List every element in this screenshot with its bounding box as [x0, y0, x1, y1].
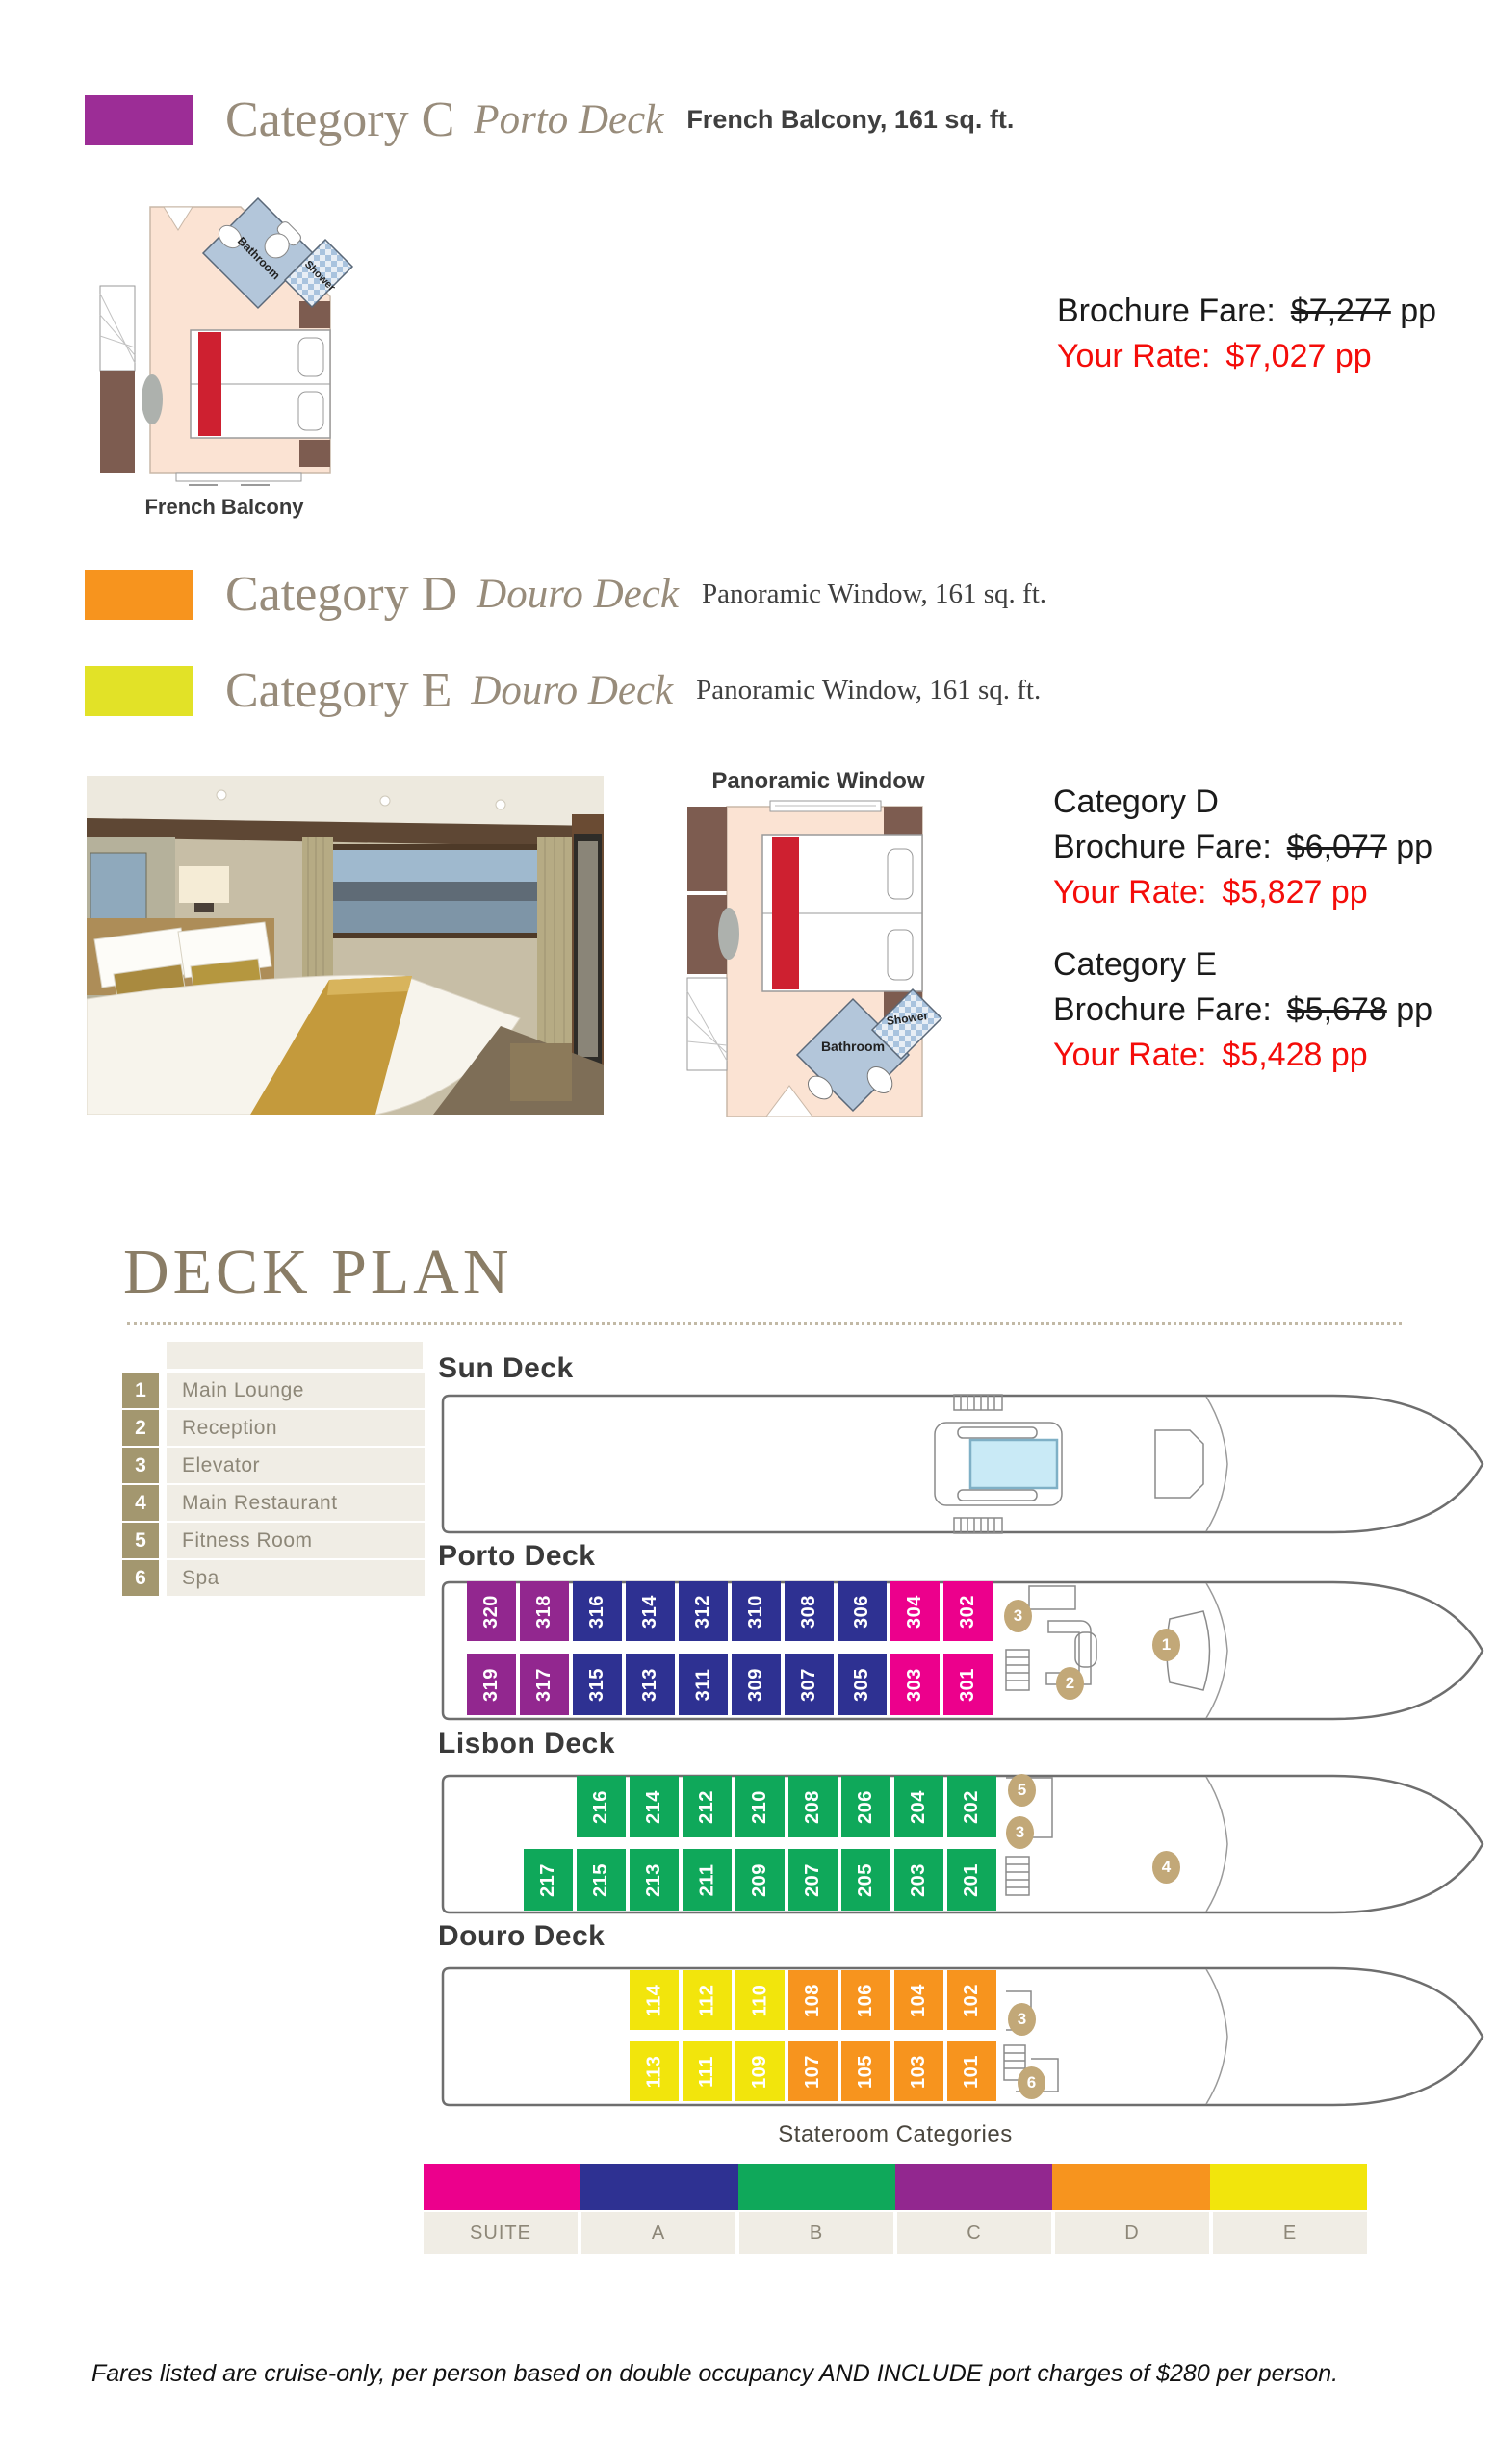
- brochure-page: Category C Porto Deck French Balcony, 16…: [0, 0, 1496, 2464]
- legend-row-3: 3Elevator: [122, 1448, 425, 1483]
- cabin-302: 302: [943, 1581, 993, 1641]
- porto-deck-label: Porto Deck: [438, 1540, 595, 1573]
- category-e-color-swatch: [85, 666, 193, 716]
- legend-label: Elevator: [167, 1448, 425, 1483]
- french-balcony-floorplan: Bathroom Shower French Balcony: [94, 197, 354, 520]
- legend-label: Main Lounge: [167, 1373, 425, 1408]
- cabin-109: 109: [735, 2041, 785, 2101]
- legend-number-badge: 6: [122, 1560, 159, 1596]
- cabin-113: 113: [630, 2041, 679, 2101]
- category-color-a: [580, 2164, 737, 2210]
- deck-marker-1: 1: [1152, 1629, 1180, 1661]
- category-c-detail: French Balcony, 161 sq. ft.: [686, 105, 1014, 135]
- ship-outline: [438, 1392, 1487, 1536]
- cabin-205: 205: [841, 1849, 890, 1911]
- cabin-213: 213: [630, 1849, 679, 1911]
- cabin-306: 306: [838, 1581, 887, 1641]
- stateroom-photo: [87, 776, 604, 1115]
- cabin-204: 204: [894, 1776, 943, 1837]
- cabin-215: 215: [577, 1849, 626, 1911]
- category-d-title: Category D: [225, 566, 457, 623]
- cabin-209: 209: [735, 1849, 785, 1911]
- deck-marker-3: 3: [1004, 1600, 1032, 1632]
- category-e-brochure-fare: Brochure Fare:$5,678 pp: [1053, 988, 1432, 1033]
- lisbon-deck-hull: 2162142122102082062042022172152132112092…: [438, 1772, 1487, 1916]
- category-color-c: [895, 2164, 1052, 2210]
- cabin-217: 217: [524, 1849, 573, 1911]
- french-balcony-floorplan-drawing: Bathroom Shower: [94, 197, 354, 486]
- panoramic-window-caption: Panoramic Window: [674, 768, 963, 795]
- cabin-314: 314: [626, 1581, 675, 1641]
- legend-row-6: 6Spa: [122, 1560, 425, 1596]
- stateroom-photo-image: [87, 776, 604, 1115]
- cabin-316: 316: [573, 1581, 622, 1641]
- category-d-deck-name: Douro Deck: [477, 571, 679, 618]
- legend-label: Fitness Room: [167, 1523, 425, 1558]
- legend-number-badge: 4: [122, 1485, 159, 1521]
- cabin-313: 313: [626, 1654, 675, 1715]
- deck-plan-divider: [127, 1322, 1402, 1325]
- legend-label: Spa: [167, 1560, 425, 1596]
- legend-number-badge: 3: [122, 1448, 159, 1483]
- cabin-307: 307: [785, 1654, 834, 1715]
- category-c-color-swatch: [85, 95, 193, 145]
- cabin-310: 310: [732, 1581, 781, 1641]
- cabin-318: 318: [520, 1581, 569, 1641]
- legend-row-5: 5Fitness Room: [122, 1523, 425, 1558]
- legend-row-4: 4Main Restaurant: [122, 1485, 425, 1521]
- category-d-header: Category D Douro Deck Panoramic Window, …: [85, 566, 1046, 623]
- category-e-title: Category E: [225, 662, 451, 719]
- cabin-208: 208: [788, 1776, 838, 1837]
- cabin-319: 319: [467, 1654, 516, 1715]
- legend-number-badge: 5: [122, 1523, 159, 1558]
- category-label-d: D: [1055, 2212, 1209, 2254]
- category-color-e: [1210, 2164, 1367, 2210]
- category-label-b: B: [739, 2212, 893, 2254]
- cabin-107: 107: [788, 2041, 838, 2101]
- deck-marker-3: 3: [1008, 2003, 1036, 2036]
- category-color-suite: [424, 2164, 580, 2210]
- legend-row-1: 1Main Lounge: [122, 1373, 425, 1408]
- category-c-title: Category C: [225, 91, 454, 148]
- cabin-212: 212: [683, 1776, 732, 1837]
- deck-marker-2: 2: [1056, 1667, 1084, 1700]
- category-e-deck-name: Douro Deck: [471, 667, 673, 714]
- cabin-309: 309: [732, 1654, 781, 1715]
- cabin-312: 312: [679, 1581, 728, 1641]
- category-d-your-rate: Your Rate:$5,827 pp: [1053, 870, 1432, 915]
- cabin-104: 104: [894, 1970, 943, 2030]
- sun-deck-hull: [438, 1392, 1487, 1536]
- cabin-206: 206: [841, 1776, 890, 1837]
- stateroom-legend-title: Stateroom Categories: [424, 2121, 1367, 2148]
- cabin-305: 305: [838, 1654, 887, 1715]
- cabin-101: 101: [947, 2041, 996, 2101]
- douro-deck-label: Douro Deck: [438, 1920, 605, 1953]
- cabin-203: 203: [894, 1849, 943, 1911]
- category-e-your-rate: Your Rate:$5,428 pp: [1053, 1033, 1432, 1078]
- category-c-your-rate: Your Rate:$7,027 pp: [1057, 334, 1436, 379]
- category-label-a: A: [581, 2212, 735, 2254]
- porto-deck-hull: 3203183163143123103083063043023193173153…: [438, 1578, 1487, 1723]
- cabin-216: 216: [577, 1776, 626, 1837]
- category-d-brochure-fare: Brochure Fare:$6,077 pp: [1053, 825, 1432, 870]
- cabin-103: 103: [894, 2041, 943, 2101]
- cabin-102: 102: [947, 1970, 996, 2030]
- legend-label: Main Restaurant: [167, 1485, 425, 1521]
- category-d-pricing-title: Category D: [1053, 780, 1432, 825]
- category-c-brochure-fare: Brochure Fare:$7,277 pp: [1057, 289, 1436, 334]
- cabin-110: 110: [735, 1970, 785, 2030]
- category-d-detail: Panoramic Window, 161 sq. ft.: [702, 578, 1046, 610]
- category-c-deck-name: Porto Deck: [474, 96, 663, 143]
- deck-marker-4: 4: [1152, 1851, 1180, 1884]
- cabin-210: 210: [735, 1776, 785, 1837]
- cabin-201: 201: [947, 1849, 996, 1911]
- bathroom-label: Bathroom: [821, 1039, 885, 1054]
- cabin-303: 303: [890, 1654, 940, 1715]
- stateroom-label-row: SUITEABCDE: [424, 2212, 1367, 2254]
- legend-number-badge: 2: [122, 1410, 159, 1446]
- cabin-311: 311: [679, 1654, 728, 1715]
- category-color-b: [738, 2164, 895, 2210]
- stateroom-color-bar: [424, 2164, 1367, 2210]
- category-label-suite: SUITE: [424, 2212, 578, 2254]
- category-e-pricing-title: Category E: [1053, 942, 1432, 988]
- cabin-211: 211: [683, 1849, 732, 1911]
- category-c-header: Category C Porto Deck French Balcony, 16…: [85, 91, 1014, 148]
- deck-legend-header-stripe: [167, 1342, 423, 1369]
- cabin-114: 114: [630, 1970, 679, 2030]
- panoramic-window-floorplan-drawing: Bathroom Shower: [674, 799, 963, 1121]
- cabin-301: 301: [943, 1654, 993, 1715]
- category-label-c: C: [897, 2212, 1051, 2254]
- cabin-315: 315: [573, 1654, 622, 1715]
- panoramic-window-floorplan: Panoramic Window: [674, 768, 963, 1126]
- deck-marker-6: 6: [1018, 2066, 1045, 2099]
- category-c-pricing: Brochure Fare:$7,277 pp Your Rate:$7,027…: [1057, 289, 1436, 379]
- category-e-header: Category E Douro Deck Panoramic Window, …: [85, 662, 1041, 719]
- french-balcony-caption: French Balcony: [94, 495, 354, 520]
- legend-label: Reception: [167, 1410, 425, 1446]
- stateroom-legend: Stateroom Categories SUITEABCDE: [424, 2121, 1367, 2254]
- deck-marker-5: 5: [1008, 1774, 1036, 1807]
- category-d-e-pricing: Category D Brochure Fare:$6,077 pp Your …: [1053, 780, 1432, 1078]
- legend-number-badge: 1: [122, 1373, 159, 1408]
- cabin-108: 108: [788, 1970, 838, 2030]
- category-label-e: E: [1213, 2212, 1367, 2254]
- douro-deck-hull: 1141121101081061041021131111091071051031…: [438, 1964, 1487, 2109]
- legend-row-2: 2Reception: [122, 1410, 425, 1446]
- cabin-317: 317: [520, 1654, 569, 1715]
- category-e-detail: Panoramic Window, 161 sq. ft.: [696, 675, 1041, 706]
- deck-plan-title: DECK PLAN: [123, 1236, 513, 1309]
- cabin-320: 320: [467, 1581, 516, 1641]
- sun-deck-label: Sun Deck: [438, 1352, 574, 1385]
- deck-marker-3: 3: [1006, 1816, 1034, 1849]
- deck-legend: 1Main Lounge2Reception3Elevator4Main Res…: [122, 1342, 425, 1598]
- cabin-214: 214: [630, 1776, 679, 1837]
- lisbon-deck-label: Lisbon Deck: [438, 1728, 615, 1760]
- category-d-color-swatch: [85, 570, 193, 620]
- cabin-106: 106: [841, 1970, 890, 2030]
- deck-legend-rows: 1Main Lounge2Reception3Elevator4Main Res…: [122, 1373, 425, 1596]
- cabin-105: 105: [841, 2041, 890, 2101]
- cabin-304: 304: [890, 1581, 940, 1641]
- cabin-112: 112: [683, 1970, 732, 2030]
- fare-disclaimer: Fares listed are cruise-only, per person…: [91, 2360, 1338, 2388]
- category-color-d: [1052, 2164, 1209, 2210]
- cabin-308: 308: [785, 1581, 834, 1641]
- cabin-111: 111: [683, 2041, 732, 2101]
- cabin-207: 207: [788, 1849, 838, 1911]
- cabin-202: 202: [947, 1776, 996, 1837]
